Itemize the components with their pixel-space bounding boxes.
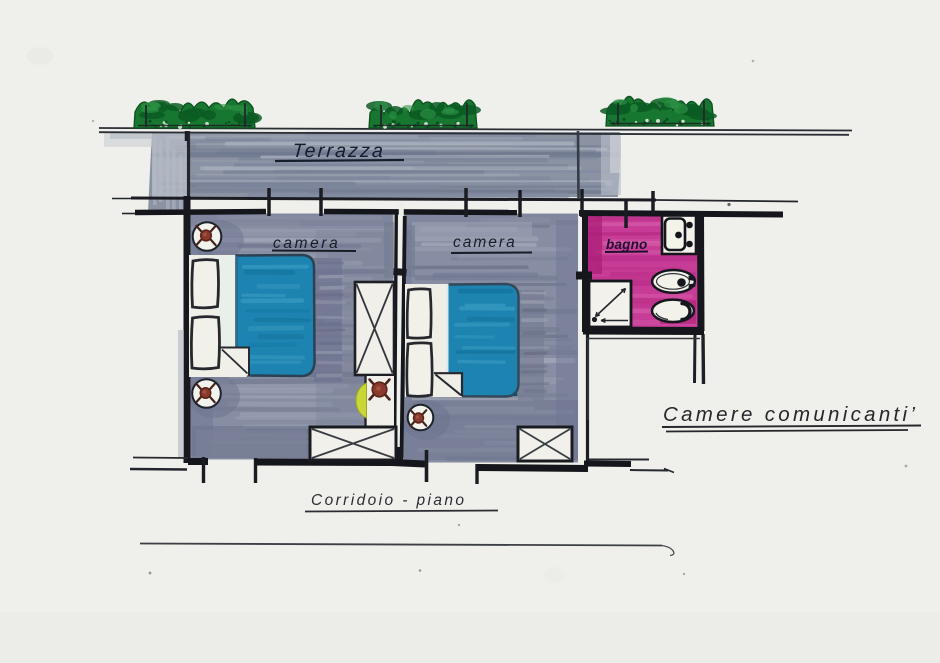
- svg-text:Camere comunicanti’: Camere comunicanti’: [663, 403, 918, 426]
- svg-text:Terrazza: Terrazza: [292, 140, 386, 162]
- svg-text:camera: camera: [273, 235, 340, 252]
- svg-text:bagno: bagno: [606, 237, 648, 252]
- svg-text:camera: camera: [453, 234, 517, 251]
- svg-text:Corridoio - piano: Corridoio - piano: [311, 492, 466, 509]
